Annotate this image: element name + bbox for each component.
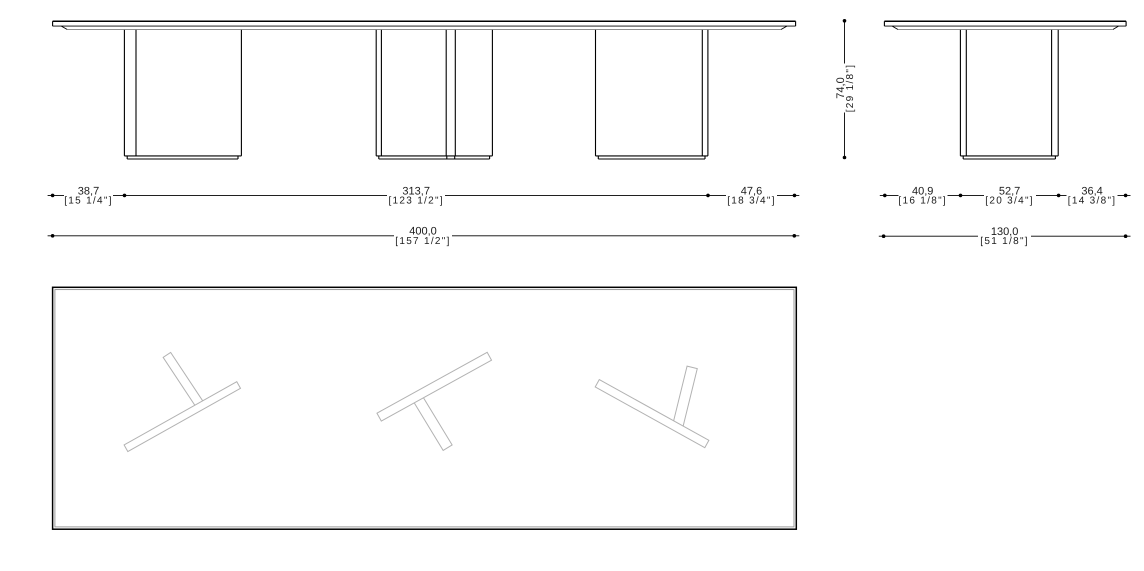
svg-text:[157 1/2"]: [157 1/2"] [395, 236, 450, 247]
svg-text:[16 1/8"]: [16 1/8"] [898, 195, 947, 206]
svg-text:[29 1/8"]: [29 1/8"] [845, 64, 856, 113]
svg-text:[123 1/2"]: [123 1/2"] [388, 195, 443, 206]
svg-text:[14 3/8"]: [14 3/8"] [1068, 195, 1117, 206]
svg-text:[15 1/4"]: [15 1/4"] [64, 195, 113, 206]
svg-text:[51 1/8"]: [51 1/8"] [980, 236, 1029, 247]
svg-text:[20 3/4"]: [20 3/4"] [985, 195, 1034, 206]
svg-text:[18 3/4"]: [18 3/4"] [727, 195, 776, 206]
